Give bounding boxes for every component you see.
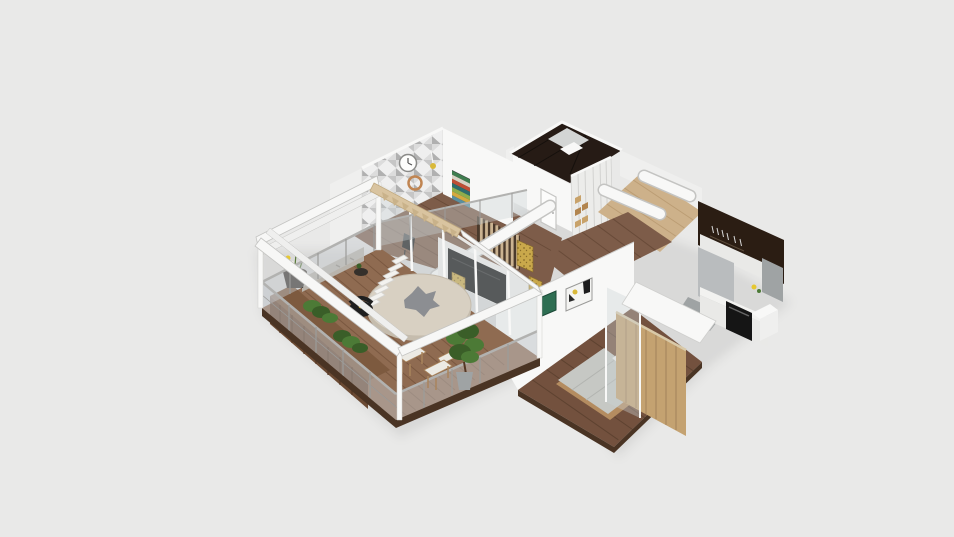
floorplan-3d-viewport[interactable]: bathroom closet hall study nook [0,0,954,537]
floorplan-render-canvas[interactable]: bathroom closet hall study nook [0,0,954,537]
pergola-post [397,352,402,420]
door-knob [552,212,554,214]
counter-item-green [757,289,761,293]
pot-plant [357,264,362,269]
gold-wall-decor [430,163,436,169]
art-gold-dot [573,290,578,295]
pergola-post [537,290,542,358]
counter-item-yellow [752,285,757,290]
black-planter-pot [354,268,368,276]
